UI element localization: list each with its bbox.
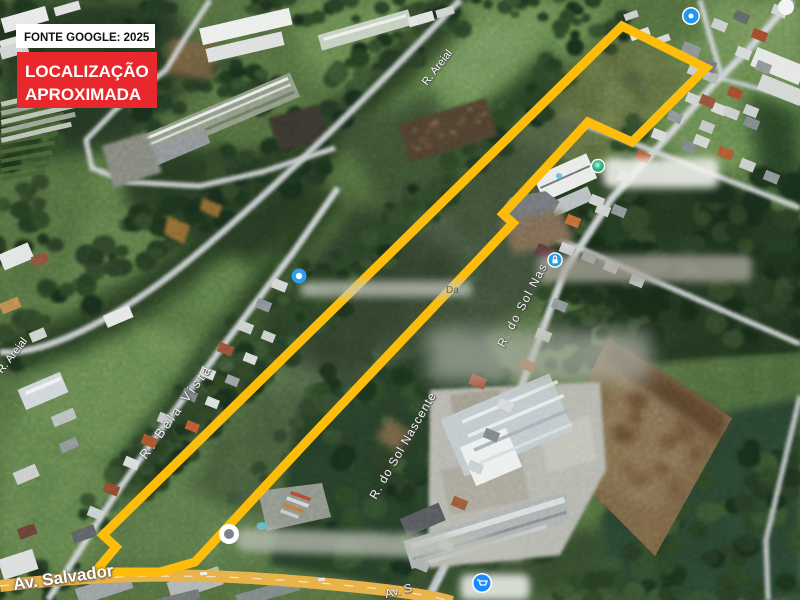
svg-text:FONTE GOOGLE: 2025: FONTE GOOGLE: 2025 xyxy=(24,32,150,44)
svg-text:Da: Da xyxy=(446,285,459,296)
svg-text:LOCALIZAÇÃO: LOCALIZAÇÃO xyxy=(25,61,149,81)
svg-text:APROXIMADA: APROXIMADA xyxy=(25,85,141,104)
